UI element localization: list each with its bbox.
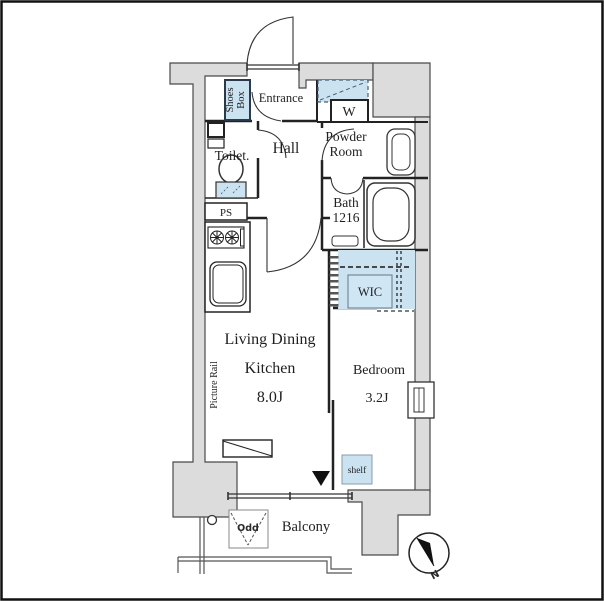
ldk-label-line1: Living Dining [224, 331, 315, 348]
powder-sink-inner [392, 134, 410, 170]
bedroom-size-label: 3.2J [366, 391, 390, 406]
toilet-tank-icon [216, 182, 246, 198]
wall-right [415, 117, 430, 492]
bath-label-line1: Bath [333, 195, 359, 210]
hall-label: Hall [273, 140, 300, 157]
bath-label-line2: 1216 [333, 210, 360, 225]
shoes-box-label-line1: Shoes [225, 87, 236, 112]
powder-room-label-line1: Powder [325, 129, 367, 144]
bedroom-label: Bedroom [353, 363, 405, 378]
toilet-label: Toilet. [215, 148, 250, 163]
washer-label: W [342, 105, 356, 120]
bathtub-inner [373, 188, 409, 241]
ps-label: PS [220, 207, 232, 219]
wic-label: WIC [358, 285, 382, 299]
balcony-label: Balcony [282, 519, 331, 535]
floorplan-page: N Shoes Box Entrance W Toilet. Hall Powd… [0, 0, 604, 601]
floorplan-drawing: N Shoes Box Entrance W Toilet. Hall Powd… [0, 0, 604, 601]
shoes-box-label-line2: Box [236, 91, 247, 109]
powder-room-label-line2: Room [329, 144, 363, 159]
wall-top-right-block [373, 63, 430, 117]
odd-label: Odd [237, 523, 259, 534]
ldk-size-label: 8.0J [257, 389, 283, 406]
shelf-label: shelf [348, 465, 367, 476]
kitchen-sink-inner [213, 265, 243, 303]
picture-rail-label: Picture Rail [209, 361, 220, 409]
balcony-drain-icon [208, 516, 217, 525]
entrance-label: Entrance [259, 91, 304, 105]
toilet-shelf-upper [208, 123, 224, 137]
ldk-label-line2: Kitchen [245, 360, 296, 377]
bath-step [332, 236, 358, 246]
toilet-shelf-lower [208, 139, 224, 148]
